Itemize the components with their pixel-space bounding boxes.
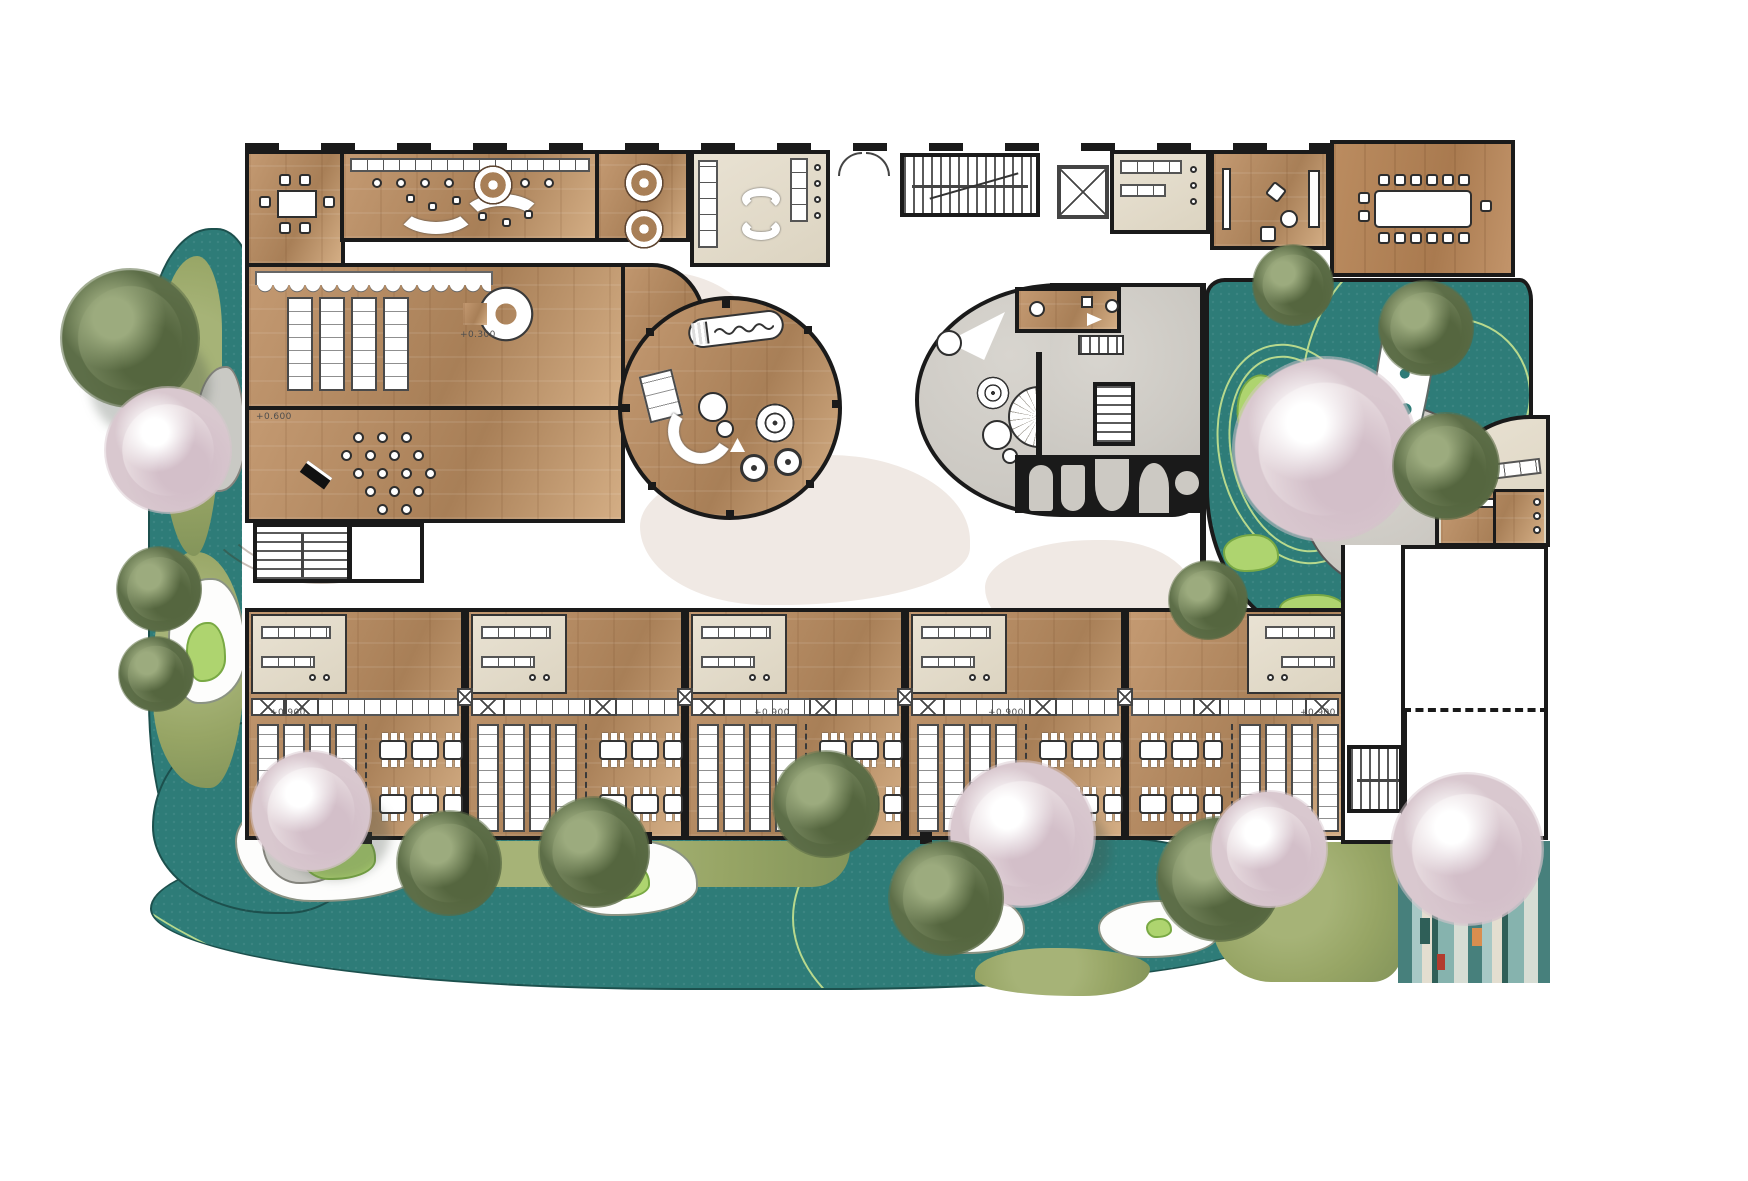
mini-chair — [524, 210, 533, 219]
toilet-stall-row — [261, 656, 315, 668]
chair — [1394, 232, 1406, 244]
kids-table — [1139, 740, 1167, 760]
elevation-label: +0.900 — [754, 708, 790, 718]
locker-x-cabinet — [911, 698, 945, 716]
stool — [544, 178, 554, 188]
wash-basin — [1267, 674, 1274, 681]
cherry-tree-icon — [1210, 790, 1328, 908]
module-bathroom — [471, 614, 567, 694]
squiggle-icon — [714, 319, 775, 338]
sofa-bench — [1308, 170, 1320, 228]
stool — [353, 432, 364, 443]
stool — [353, 468, 364, 479]
wash-basin — [543, 674, 550, 681]
play-ball — [716, 420, 734, 438]
elevation-label: +0.900 — [988, 708, 1024, 718]
window-bench — [350, 158, 590, 172]
stool — [401, 432, 412, 443]
stool — [377, 504, 388, 515]
kids-table — [1103, 794, 1123, 814]
chair — [323, 196, 335, 208]
desk-column — [351, 297, 377, 391]
stool — [372, 178, 382, 188]
wash-basin — [1533, 498, 1541, 506]
plaza-bench — [1420, 918, 1430, 944]
ring-opening — [463, 303, 487, 325]
armchair — [1265, 181, 1287, 203]
stairwell-bottom-right — [1347, 745, 1403, 813]
toilet-stall-row — [701, 656, 755, 668]
locker-x-cabinet — [809, 698, 837, 716]
locker-x-cabinet — [589, 698, 617, 716]
toothpaste-cap — [691, 321, 710, 345]
wash-basin — [1533, 526, 1541, 534]
chair — [1458, 174, 1470, 186]
circle-toy — [1105, 299, 1119, 313]
play-ball — [982, 420, 1012, 450]
kids-table — [883, 740, 903, 760]
cherry-tree-icon — [250, 750, 372, 872]
cot-column — [917, 724, 939, 832]
wall — [1036, 352, 1042, 458]
toilet-stall-row — [1120, 184, 1166, 197]
wash-basin — [1190, 166, 1197, 173]
toilet-stall-row — [1281, 656, 1335, 668]
stool — [389, 450, 400, 461]
stair-rail — [1357, 779, 1399, 782]
column-duct — [897, 688, 913, 706]
mini-chair — [452, 196, 461, 205]
stair-rail — [301, 533, 304, 577]
cot-column — [477, 724, 499, 832]
wash-basin — [529, 674, 536, 681]
plaza-bench — [1472, 928, 1482, 946]
chair — [1358, 210, 1370, 222]
tree-icon — [888, 840, 1004, 956]
conference-table — [1374, 190, 1472, 228]
cot-column — [749, 724, 771, 832]
wash-basin — [309, 674, 316, 681]
cherry-tree-icon — [1232, 356, 1418, 542]
floor-plan-canvas: +0.300 +0.600 +0.900 +0.900 +0.900 +0.90… — [0, 0, 1748, 1181]
sculpture-cutout — [1095, 459, 1129, 511]
round-play-pod — [621, 160, 667, 206]
stool — [396, 178, 406, 188]
stool — [401, 468, 412, 479]
wash-basin — [814, 180, 821, 187]
mini-chair — [428, 202, 437, 211]
wash-basin — [749, 674, 756, 681]
play-pod-room — [595, 150, 690, 242]
meeting-room — [1330, 140, 1515, 277]
elevation-label: +0.300 — [460, 330, 496, 340]
kids-table — [631, 794, 659, 814]
play-lobby — [340, 150, 600, 242]
toilet-stall-row — [481, 656, 535, 668]
sculpture-cutout — [1061, 465, 1085, 511]
chair — [1426, 232, 1438, 244]
cot-column — [697, 724, 719, 832]
stool — [401, 504, 412, 515]
chair — [1426, 174, 1438, 186]
wash-basin — [983, 674, 990, 681]
tree-icon — [116, 546, 202, 632]
wash-basin — [814, 164, 821, 171]
tree-icon — [1378, 280, 1474, 376]
triangle-toy — [1087, 313, 1102, 326]
kids-table — [1071, 740, 1099, 760]
chair — [1410, 232, 1422, 244]
kids-table — [599, 740, 627, 760]
chair — [259, 196, 271, 208]
kids-table — [663, 794, 683, 814]
cot-column — [503, 724, 525, 832]
armchair — [1260, 226, 1276, 242]
ring-toy — [740, 454, 768, 482]
curved-bench — [742, 188, 780, 210]
office-table — [277, 190, 317, 218]
wash-basin — [1190, 198, 1197, 205]
kids-table — [379, 794, 407, 814]
kids-table — [1103, 740, 1123, 760]
module-bathroom — [911, 614, 1007, 694]
desk-column — [319, 297, 345, 391]
module-bathroom — [251, 614, 347, 694]
mini-chair — [478, 212, 487, 221]
column-duct — [677, 688, 693, 706]
column — [646, 328, 654, 336]
wash-basin — [1190, 182, 1197, 189]
wall — [1493, 492, 1496, 546]
stool — [413, 486, 424, 497]
geo-play-alcove — [1015, 287, 1121, 333]
square-toy — [1081, 296, 1093, 308]
stair-small — [1078, 335, 1124, 355]
locker-x-cabinet — [1193, 698, 1221, 716]
sculpture-cutout — [1029, 465, 1053, 511]
stool — [377, 432, 388, 443]
wash-basin — [814, 196, 821, 203]
column-duct — [1117, 688, 1133, 706]
column — [622, 404, 630, 412]
stool — [377, 468, 388, 479]
chair — [1410, 174, 1422, 186]
grass-islet — [1223, 534, 1279, 572]
stool — [425, 468, 436, 479]
column — [722, 300, 730, 308]
stairwell-top — [900, 153, 1040, 217]
sculpture-cutout — [1175, 471, 1199, 495]
toilet-stall-row — [261, 626, 331, 639]
coffee-table — [1280, 210, 1298, 228]
toilet-stall-row — [1265, 626, 1335, 639]
chair — [279, 222, 291, 234]
kids-table — [1171, 794, 1199, 814]
chair — [1480, 200, 1492, 212]
toilet-stall-row — [701, 626, 771, 639]
wash-basin — [323, 674, 330, 681]
column — [832, 400, 840, 408]
mini-chair — [406, 194, 415, 203]
cot-column — [529, 724, 551, 832]
round-play-pod — [470, 162, 516, 208]
mini-chair — [502, 218, 511, 227]
kids-table — [1171, 740, 1199, 760]
chair — [299, 222, 311, 234]
side-counter — [1222, 168, 1231, 230]
stool — [389, 486, 400, 497]
stool — [341, 450, 352, 461]
wc-block-top-right — [1110, 150, 1210, 234]
toilet-stall-row — [481, 626, 551, 639]
chair — [1442, 232, 1454, 244]
tree-icon — [1252, 244, 1334, 326]
curved-bench — [742, 218, 780, 240]
chair — [279, 174, 291, 186]
toilet-stall-row — [790, 158, 808, 222]
sculpture-cutout — [1139, 463, 1169, 513]
locker-x-cabinet — [471, 698, 505, 716]
column — [648, 482, 656, 490]
play-sculpture-wall — [1015, 455, 1203, 513]
locker-x-cabinet — [691, 698, 725, 716]
scalloped-shelf — [255, 271, 493, 285]
reception-office — [245, 150, 345, 267]
toilet-stall-row — [921, 656, 975, 668]
chair — [1458, 232, 1470, 244]
chair — [299, 174, 311, 186]
courtyard-hall — [1401, 545, 1548, 712]
desk-column — [287, 297, 313, 391]
music-room — [245, 406, 625, 523]
cot-column — [723, 724, 745, 832]
desk-column — [383, 297, 409, 391]
elevation-label: +0.900 — [270, 708, 306, 718]
kids-table — [443, 740, 463, 760]
store-room — [348, 523, 424, 583]
toilet-stall-row — [698, 160, 718, 248]
stool — [520, 178, 530, 188]
chair — [1378, 232, 1390, 244]
stool — [413, 450, 424, 461]
kids-table — [1139, 794, 1167, 814]
kids-table — [851, 740, 879, 760]
kids-table — [663, 740, 683, 760]
elevation-label: +0.900 — [1300, 708, 1336, 718]
tree-icon — [772, 750, 880, 858]
wc-block-top-left — [690, 150, 830, 267]
tree-icon — [396, 810, 502, 916]
column — [726, 510, 734, 518]
kids-table — [411, 740, 439, 760]
column — [804, 326, 812, 334]
play-ball — [698, 392, 728, 422]
kids-table — [1203, 740, 1223, 760]
cherry-tree-icon — [1390, 772, 1544, 926]
chair — [1442, 174, 1454, 186]
module-bathroom — [1247, 614, 1343, 694]
target-rug — [750, 398, 800, 448]
circular-playroom — [618, 296, 842, 520]
toothpaste-toy — [687, 308, 786, 349]
tree-icon — [118, 636, 194, 712]
wash-basin — [1281, 674, 1288, 681]
stairwell-left — [253, 523, 351, 583]
stool — [365, 486, 376, 497]
wash-basin — [969, 674, 976, 681]
elevation-label: +0.600 — [256, 412, 292, 422]
chair — [1394, 174, 1406, 186]
column — [806, 480, 814, 488]
kids-table — [631, 740, 659, 760]
wash-basin — [1533, 512, 1541, 520]
kids-table — [1039, 740, 1067, 760]
elevator — [1057, 165, 1109, 219]
ring-toy — [774, 448, 802, 476]
chair — [1378, 174, 1390, 186]
stair-oval — [1093, 382, 1135, 446]
wash-basin — [763, 674, 770, 681]
tree-icon — [538, 796, 650, 908]
wash-basin — [814, 212, 821, 219]
target-rug — [972, 372, 1014, 414]
module-bathroom — [691, 614, 787, 694]
chair — [1358, 192, 1370, 204]
cherry-tree-icon — [104, 386, 232, 514]
play-ball — [936, 330, 962, 356]
stool — [365, 450, 376, 461]
toilet-stall-row — [1120, 160, 1182, 174]
column-duct — [457, 688, 473, 706]
kids-table — [379, 740, 407, 760]
toilet-stall-row — [921, 626, 991, 639]
round-play-pod — [621, 206, 667, 252]
kids-table — [883, 794, 903, 814]
cot-column — [1317, 724, 1339, 832]
kids-table — [1203, 794, 1223, 814]
plaza-bench — [1437, 954, 1445, 970]
tree-icon — [1392, 412, 1500, 520]
tree-icon — [1168, 560, 1248, 640]
circle-toy — [1029, 301, 1045, 317]
staff-lounge — [1210, 150, 1330, 250]
locker-x-cabinet — [1029, 698, 1057, 716]
grass-islet — [1146, 918, 1172, 938]
